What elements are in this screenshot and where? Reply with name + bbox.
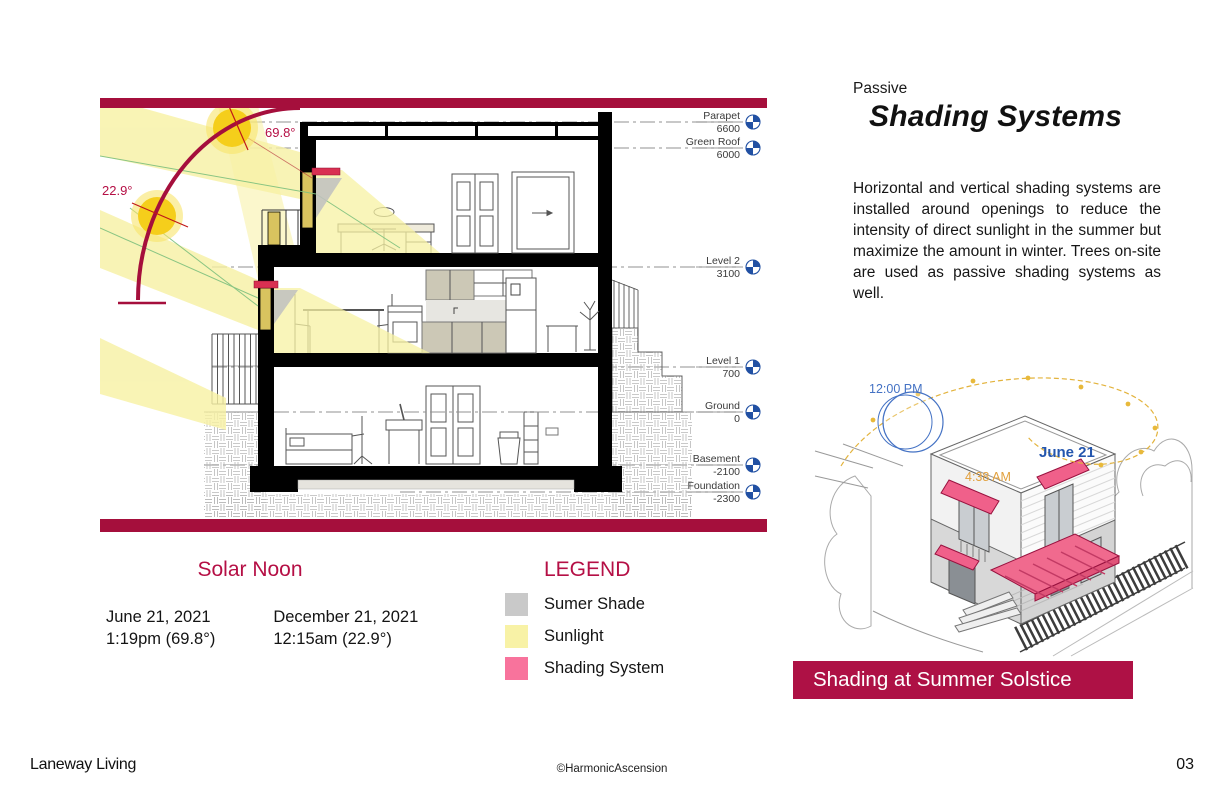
solar-noon-summer: June 21, 2021 1:19pm (69.8°) <box>106 606 215 650</box>
page: 69.8° 22.9° Parapet 6600 Green Roof 6000… <box>0 0 1224 792</box>
solar-noon-title: Solar Noon <box>120 558 380 582</box>
winter-date: December 21, 2021 <box>273 606 418 628</box>
legend-label: Sunlight <box>544 627 604 646</box>
legend: Sumer Shade Sunlight Shading System <box>505 593 664 680</box>
sunrise-label: 4:38 AM <box>965 470 1011 484</box>
planter-stair <box>612 280 682 412</box>
caption-banner: Shading at Summer Solstice <box>793 661 1133 699</box>
solar-noon-table: June 21, 2021 1:19pm (69.8°) December 21… <box>106 606 418 650</box>
sun-sphere <box>883 392 943 452</box>
svg-text:Green Roof: Green Roof <box>686 136 740 148</box>
eyebrow-passive: Passive <box>853 80 907 98</box>
svg-text:6600: 6600 <box>717 123 741 135</box>
winter-angle-label: 22.9° <box>102 183 133 198</box>
summer-date: June 21, 2021 <box>106 606 215 628</box>
svg-text:-2300: -2300 <box>713 493 740 505</box>
svg-text:3100: 3100 <box>717 268 741 280</box>
footer-page-number: 03 <box>1176 756 1194 774</box>
svg-text:Level 1: Level 1 <box>706 355 740 367</box>
svg-text:0: 0 <box>734 413 740 425</box>
winter-time: 12:15am (22.9°) <box>273 628 418 650</box>
legend-item-shading-system: Shading System <box>505 657 664 680</box>
summer-angle-label: 69.8° <box>265 125 296 140</box>
shade-swatch <box>505 593 528 616</box>
date-label: June 21 <box>1039 444 1095 461</box>
building-section-diagram: 69.8° 22.9° Parapet 6600 Green Roof 6000… <box>100 98 767 532</box>
solar-noon-winter: December 21, 2021 12:15am (22.9°) <box>273 606 418 650</box>
svg-text:Basement: Basement <box>693 453 740 465</box>
isometric-shading-illustration: 12:00 PM June 21 4:38 AM <box>813 356 1195 658</box>
legend-label: Sumer Shade <box>544 595 645 614</box>
legend-title: LEGEND <box>544 558 630 582</box>
svg-text:Foundation: Foundation <box>687 480 740 492</box>
body-paragraph: Horizontal and vertical shading systems … <box>853 178 1161 304</box>
section-bottom-bar <box>100 519 767 532</box>
footer-copyright: ©HarmonicAscension <box>0 763 1224 775</box>
legend-item-sunlight: Sunlight <box>505 625 664 648</box>
svg-text:Level 2: Level 2 <box>706 255 740 267</box>
site-fence <box>212 334 266 404</box>
svg-text:6000: 6000 <box>717 149 741 161</box>
noon-label: 12:00 PM <box>869 382 923 396</box>
section-top-bar <box>100 98 767 108</box>
summer-time: 1:19pm (69.8°) <box>106 628 215 650</box>
legend-label: Shading System <box>544 659 664 678</box>
svg-text:Parapet: Parapet <box>703 110 740 122</box>
svg-text:Ground: Ground <box>705 400 740 412</box>
legend-item-shade: Sumer Shade <box>505 593 664 616</box>
svg-text:700: 700 <box>722 368 740 380</box>
page-title: Shading Systems <box>869 100 1122 134</box>
svg-text:-2100: -2100 <box>713 466 740 478</box>
sunlight-swatch <box>505 625 528 648</box>
shading-system-swatch <box>505 657 528 680</box>
level-labels: Parapet 6600 Green Roof 6000 Level 2 310… <box>686 110 760 505</box>
